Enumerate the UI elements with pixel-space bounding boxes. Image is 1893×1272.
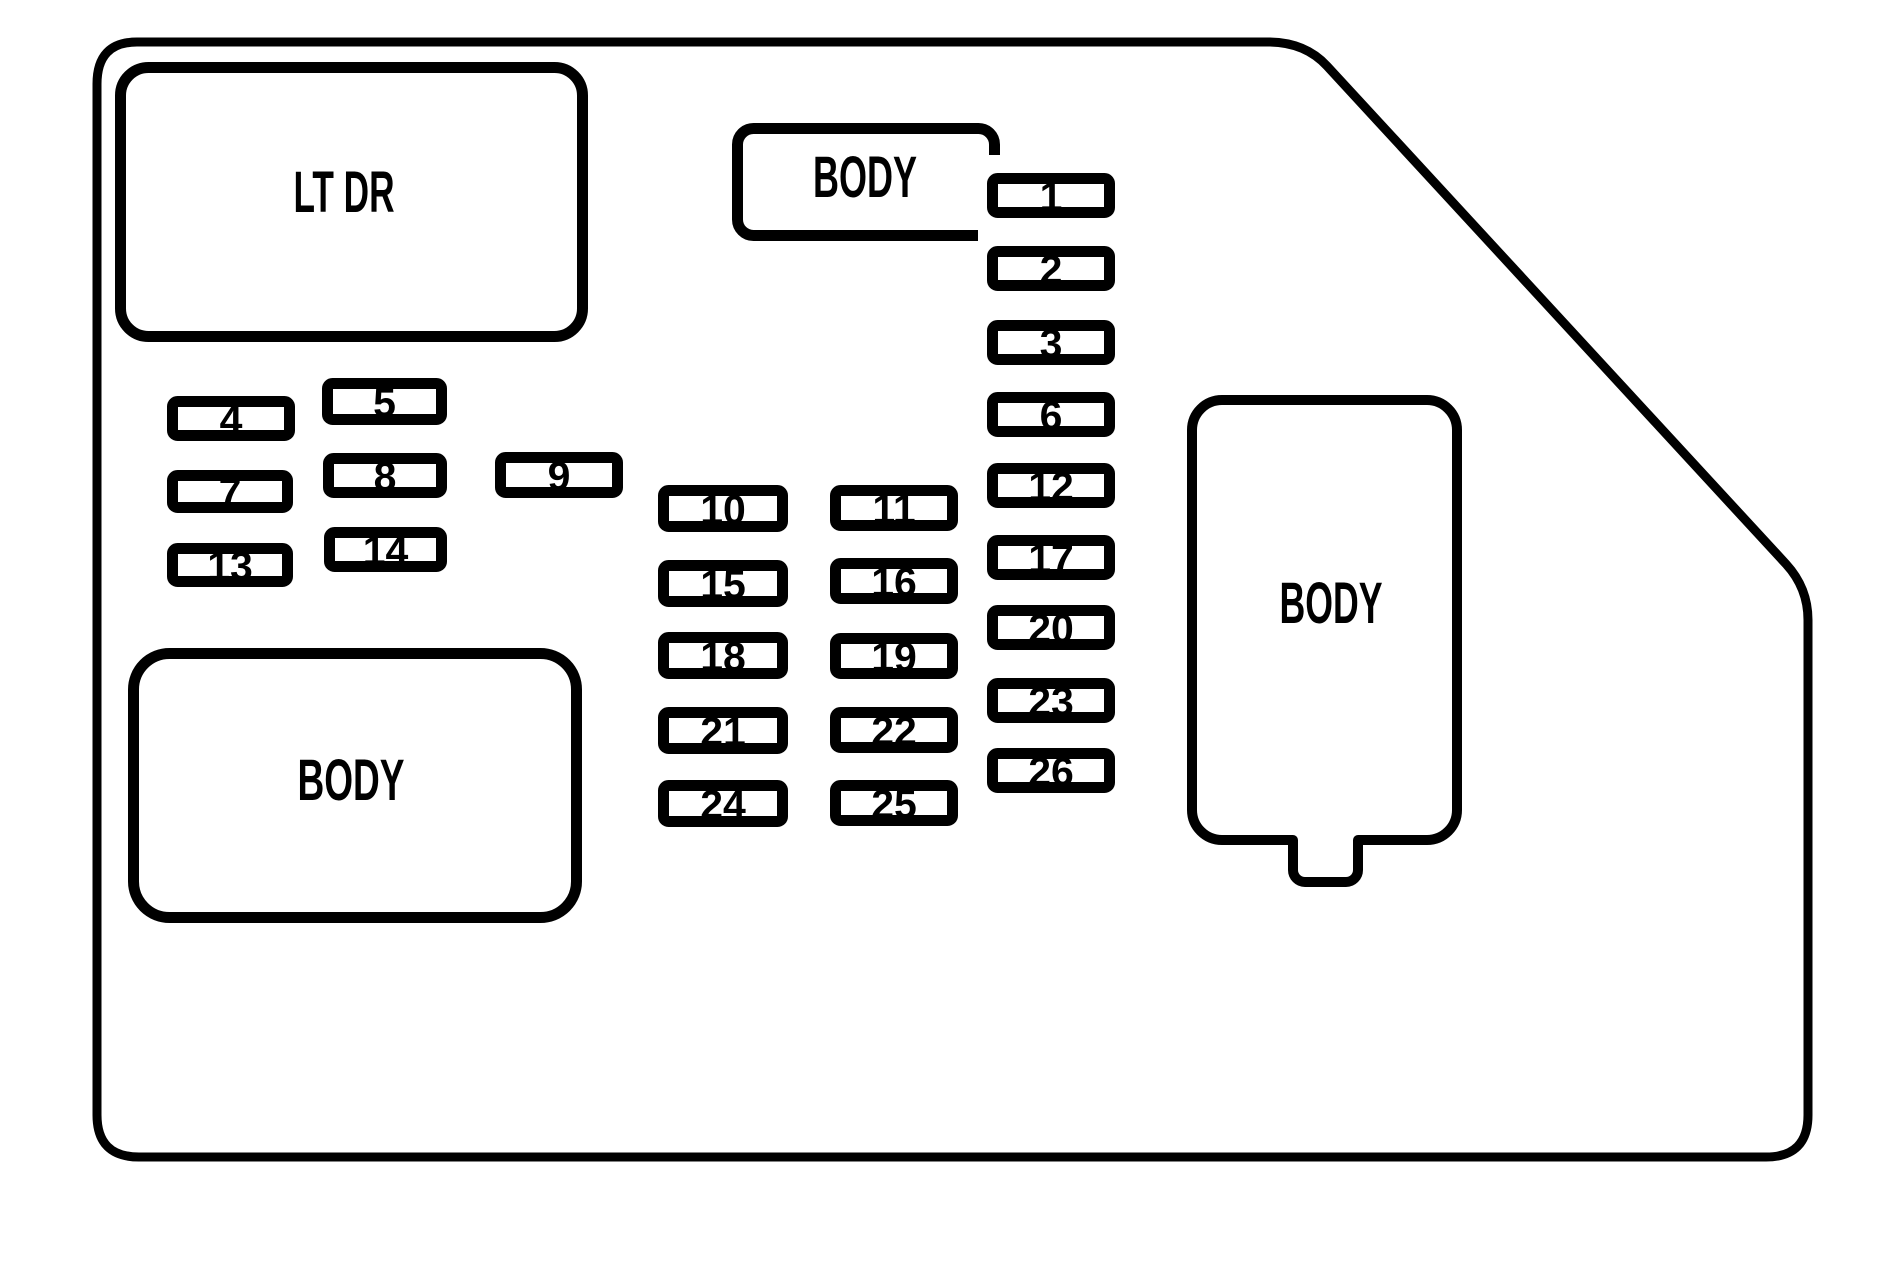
fuse-5: 5 (328, 380, 442, 426)
fuse-7: 7 (173, 470, 288, 516)
fuse-7-label: 7 (219, 470, 242, 516)
fuse-17-label: 17 (1028, 536, 1074, 582)
fuse-1: 1 (993, 174, 1110, 220)
fuse-20: 20 (993, 606, 1110, 652)
fuse-18-label: 18 (700, 634, 746, 680)
fuse-26-label: 26 (1028, 749, 1074, 795)
block-lt-dr: LT DR (121, 68, 583, 337)
fuse-3: 3 (993, 321, 1110, 367)
block-body-right-box (1192, 400, 1457, 882)
fuse-5-label: 5 (373, 380, 396, 426)
fuse-2: 2 (993, 247, 1110, 293)
fuse-15: 15 (664, 562, 783, 608)
fuse-25-label: 25 (871, 781, 917, 827)
fuse-box-diagram-canvas: LT DR BODY BODY BODY 1 2 3 6 12 17 (0, 0, 1893, 1272)
fuse-9: 9 (501, 453, 618, 499)
fuse-4-label: 4 (220, 397, 243, 443)
fuse-12: 12 (993, 464, 1110, 510)
fuse-24: 24 (664, 782, 783, 828)
fuse-14: 14 (330, 528, 442, 574)
fuse-9-label: 9 (548, 453, 571, 499)
fuse-1-label: 1 (1040, 174, 1063, 220)
fuse-4: 4 (173, 397, 290, 443)
fuse-12-label: 12 (1028, 464, 1074, 510)
fuse-10: 10 (664, 487, 783, 533)
fuse-11: 11 (836, 486, 953, 532)
fuse-21-label: 21 (700, 709, 746, 755)
fuse-6: 6 (993, 393, 1110, 439)
block-body-bottom: BODY (134, 654, 577, 918)
block-body-top: BODY (738, 129, 995, 236)
block-body-right-label: BODY (1280, 571, 1383, 636)
fuse-22: 22 (836, 708, 953, 754)
fuse-19: 19 (836, 634, 953, 680)
fuse-8-label: 8 (374, 454, 397, 500)
fuse-19-label: 19 (871, 634, 917, 680)
fuse-2-label: 2 (1040, 247, 1063, 293)
fuse-23-label: 23 (1028, 679, 1074, 725)
fuse-8: 8 (329, 454, 442, 500)
fuse-14-label: 14 (363, 528, 409, 574)
fuse-17: 17 (993, 536, 1110, 582)
block-body-bottom-label: BODY (298, 748, 405, 813)
fuse-16: 16 (836, 559, 953, 605)
fuse-13: 13 (173, 543, 288, 589)
fuse-6-label: 6 (1040, 393, 1063, 439)
fuse-18: 18 (664, 634, 783, 680)
fuse-3-label: 3 (1040, 321, 1063, 367)
fuse-20-label: 20 (1028, 606, 1074, 652)
block-body-top-label: BODY (813, 145, 917, 210)
fuse-10-label: 10 (700, 487, 746, 533)
fuse-15-label: 15 (700, 562, 746, 608)
fuse-26: 26 (993, 749, 1110, 795)
fuse-13-label: 13 (207, 543, 253, 589)
fuse-16-label: 16 (871, 559, 917, 605)
fuse-25: 25 (836, 781, 953, 827)
block-lt-dr-label: LT DR (294, 160, 395, 225)
fuse-23: 23 (993, 679, 1110, 725)
fuse-24-label: 24 (700, 782, 746, 828)
block-body-right: BODY (1192, 400, 1457, 882)
fuse-22-label: 22 (871, 708, 917, 754)
fuse-box-diagram: LT DR BODY BODY BODY 1 2 3 6 12 17 (0, 0, 1893, 1272)
fuse-21: 21 (664, 709, 783, 755)
fuse-11-label: 11 (872, 486, 915, 532)
